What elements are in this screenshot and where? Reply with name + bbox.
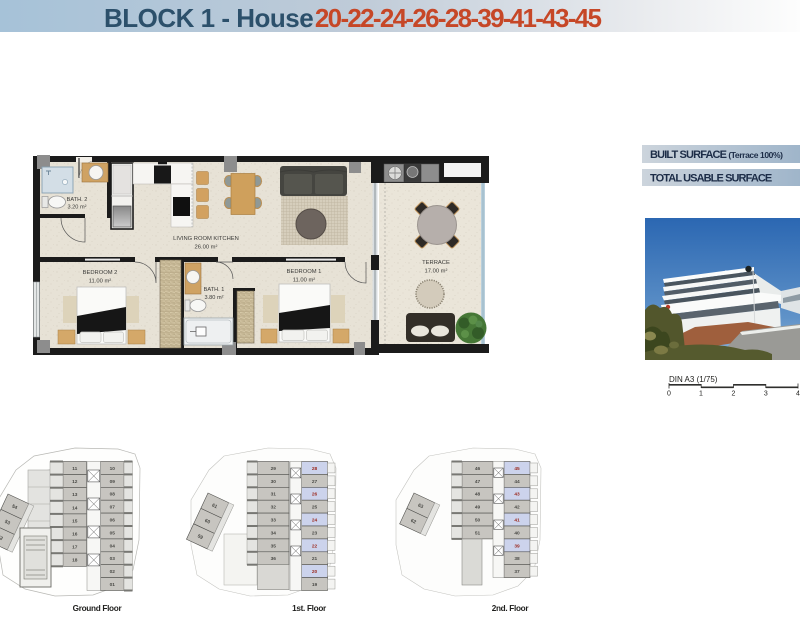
svg-text:46: 46	[475, 466, 481, 472]
svg-text:37: 37	[514, 569, 520, 575]
svg-text:22: 22	[312, 543, 318, 549]
svg-text:45: 45	[514, 466, 520, 472]
svg-text:42: 42	[514, 505, 520, 511]
svg-text:11.00 m²: 11.00 m²	[89, 279, 112, 285]
svg-text:2: 2	[732, 391, 736, 398]
svg-text:01: 01	[110, 582, 116, 588]
svg-text:BATH. 2: BATH. 2	[67, 197, 88, 203]
svg-text:3.80 m²: 3.80 m²	[205, 295, 224, 301]
svg-text:06: 06	[110, 517, 116, 523]
svg-text:49: 49	[475, 505, 481, 511]
svg-text:11.00 m²: 11.00 m²	[293, 278, 316, 284]
svg-text:34: 34	[271, 530, 277, 536]
svg-text:25: 25	[312, 505, 318, 511]
svg-text:12: 12	[72, 479, 78, 485]
svg-text:29: 29	[271, 466, 277, 472]
svg-text:35: 35	[271, 543, 277, 549]
svg-text:BUILT SURFACE (Terrace 100%): BUILT SURFACE (Terrace 100%)	[650, 149, 783, 161]
svg-text:16: 16	[72, 531, 78, 537]
svg-text:28: 28	[312, 466, 318, 472]
svg-text:1st. Floor: 1st. Floor	[292, 604, 327, 613]
svg-text:17.00 m²: 17.00 m²	[425, 269, 448, 275]
svg-text:04: 04	[110, 543, 116, 549]
svg-text:27: 27	[312, 479, 318, 485]
svg-text:4: 4	[796, 391, 800, 398]
svg-text:30: 30	[271, 479, 277, 485]
svg-text:TOTAL USABLE SURFACE: TOTAL USABLE SURFACE	[650, 173, 772, 185]
svg-text:BLOCK 1 - House 20-22-24-26-28: BLOCK 1 - House 20-22-24-26-28-39-41-43-…	[104, 3, 602, 33]
svg-text:LIVING ROOM KITCHEN: LIVING ROOM KITCHEN	[173, 236, 239, 242]
svg-text:48: 48	[475, 492, 481, 498]
svg-text:20: 20	[312, 569, 318, 575]
svg-text:2nd. Floor: 2nd. Floor	[492, 604, 530, 613]
svg-text:33: 33	[271, 517, 277, 523]
svg-text:3.20 m²: 3.20 m²	[68, 205, 87, 211]
svg-text:Ground Floor: Ground Floor	[73, 604, 123, 613]
svg-text:36: 36	[271, 556, 277, 562]
svg-text:BATH. 1: BATH. 1	[204, 287, 225, 293]
svg-text:0: 0	[667, 391, 671, 398]
svg-text:40: 40	[514, 530, 520, 536]
svg-text:3: 3	[764, 391, 768, 398]
svg-text:09: 09	[110, 479, 116, 485]
svg-text:11: 11	[72, 466, 77, 472]
svg-text:32: 32	[271, 505, 277, 511]
svg-text:18: 18	[72, 558, 78, 564]
svg-text:07: 07	[110, 505, 116, 511]
svg-text:08: 08	[110, 492, 116, 498]
svg-text:26: 26	[312, 492, 318, 498]
svg-text:21: 21	[312, 556, 318, 562]
svg-text:47: 47	[475, 479, 481, 485]
svg-text:41: 41	[514, 517, 520, 523]
svg-text:03: 03	[110, 556, 116, 562]
svg-text:23: 23	[312, 530, 318, 536]
svg-text:DIN A3 (1/75): DIN A3 (1/75)	[669, 375, 718, 384]
svg-text:BEDROOM 2: BEDROOM 2	[83, 270, 118, 276]
svg-text:44: 44	[514, 479, 520, 485]
svg-text:TERRACE: TERRACE	[422, 260, 450, 266]
svg-text:50: 50	[475, 517, 481, 523]
svg-text:02: 02	[110, 569, 116, 575]
svg-text:24: 24	[312, 517, 318, 523]
svg-text:13: 13	[72, 492, 78, 498]
svg-text:1: 1	[699, 391, 703, 398]
svg-text:BEDROOM 1: BEDROOM 1	[287, 269, 322, 275]
svg-text:39: 39	[514, 543, 520, 549]
svg-text:26.00 m²: 26.00 m²	[195, 245, 218, 251]
svg-text:19: 19	[312, 582, 318, 588]
svg-text:38: 38	[514, 556, 520, 562]
svg-text:17: 17	[72, 545, 78, 551]
svg-text:15: 15	[72, 518, 78, 524]
svg-text:31: 31	[271, 492, 277, 498]
svg-text:14: 14	[72, 505, 78, 511]
svg-text:10: 10	[110, 466, 116, 472]
svg-text:51: 51	[475, 530, 481, 536]
svg-text:43: 43	[514, 492, 520, 498]
svg-text:05: 05	[110, 530, 116, 536]
